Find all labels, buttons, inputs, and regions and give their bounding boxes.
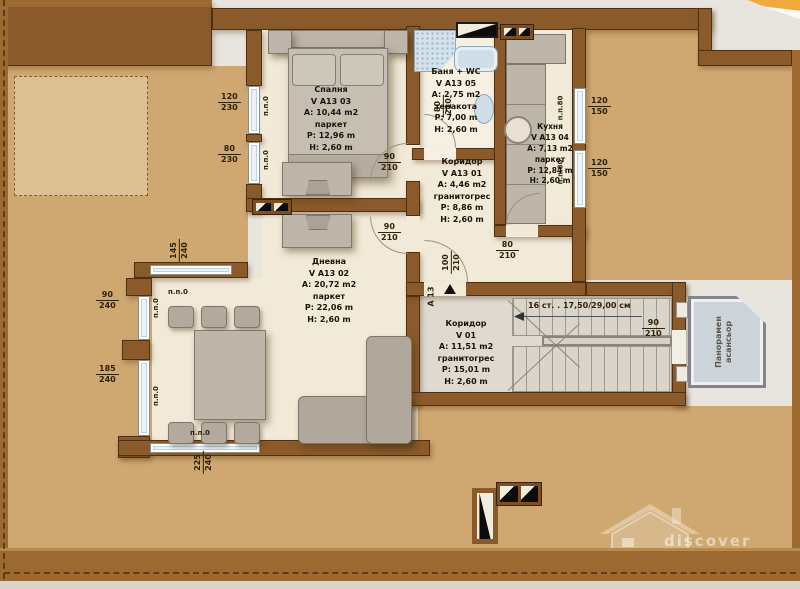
elevator-pier [676,366,688,382]
dim-living-window-top: 145240 [169,239,190,262]
room-area: A: 7,13 m2 [518,144,582,155]
dining-chair [168,306,194,328]
dim-living-window-bottom: 225240 [193,451,214,474]
room-height: H: 2,60 m [518,176,582,187]
flue-cell-icon [504,28,516,36]
parapet-label: п.п.0 [262,96,270,116]
room-height: H: 2,60 m [424,376,508,388]
parapet-wall-horizontal [698,50,792,66]
room-area: A: 4,46 m2 [424,179,500,191]
dim-bedroom-door: 90210 [378,152,401,173]
room-label-kitchen: Кухня V A13 04 A: 7,13 m2 паркет P: 12,8… [518,122,582,187]
wall [406,181,420,216]
room-label-hall: Коридор V A13 01 A: 4,46 m2 гранитогрес … [424,156,500,226]
door-gap-living [406,216,420,252]
room-label-lobby: Коридор V 01 A: 11,51 m2 гранитогрес P: … [424,318,508,388]
dim-living-door: 90210 [378,222,401,243]
parapet-label: п.п.0 [152,298,160,318]
stairs-label: 16 ст. . 17,50/29,00 см [528,301,678,310]
room-perimeter: P: 8,86 m [424,202,500,214]
room-name: Коридор [424,318,508,330]
wall [246,30,262,86]
room-name: Баня + WC [420,66,492,78]
room-floor-type: паркет [286,119,376,131]
dim-bedroom-window-2: 80230 [218,144,241,165]
flue-cell-icon [274,203,289,211]
chair [306,180,330,195]
flue-cell-icon [500,486,518,502]
dim-living-window-2: 185240 [96,364,119,385]
chimney-fill [477,493,493,539]
pillar [122,340,150,360]
room-floor-type: теракота [420,101,492,113]
chimney-symbol [472,488,498,544]
flue-cell-icon [256,203,271,211]
flue-symbol [500,24,534,40]
door-gap-lobby [672,330,686,364]
room-label-living: Дневна V A13 02 A: 20,72 m2 паркет P: 22… [284,256,374,326]
flue-symbol [496,482,542,506]
room-floor-type: гранитогрес [424,191,500,203]
stairs-lower-flight [512,346,672,392]
pillar [126,278,152,296]
elevator-label: Панорамен асансьор [714,302,734,382]
wall [246,134,262,142]
room-id: V A13 05 [420,78,492,90]
room-floor-type: гранитогрес [424,353,508,365]
room-label-bath: Баня + WC V A13 05 A: 2,75 m2 теракота P… [420,66,492,136]
room-floor-type: паркет [518,155,582,166]
vent-shaft [456,22,498,38]
elevator-label-line1: Панорамен [714,316,723,368]
room-floor-type: паркет [284,291,374,303]
parapet-label: п.п.80 [556,96,564,121]
room-name: Спалня [286,84,376,96]
dim-kitchen-door: 80210 [496,240,519,261]
parapet-label: п.п.0 [168,288,188,296]
dim-living-window-1: 90240 [96,290,119,311]
dim-kitchen-window-2: 120150 [588,158,611,179]
room-height: H: 2,60 m [424,214,500,226]
wall-mass-top-left [0,0,212,66]
window-living-1 [138,296,150,340]
room-perimeter: P: 12,96 m [286,130,376,142]
room-area: A: 11,51 m2 [424,341,508,353]
dining-chair [234,422,260,444]
pillow [340,54,384,86]
window-living-top [150,265,232,275]
dining-chair [234,306,260,328]
room-perimeter: P: 7,00 m [420,112,492,124]
window-bedroom-1 [248,86,260,134]
stairs-walk-line [524,316,642,317]
room-perimeter: P: 12,84 m [518,166,582,177]
pillow [292,54,336,86]
entrance-label: A 13 [427,286,436,306]
room-height: H: 2,60 m [284,314,374,326]
floor-plan: Панорамен асансьор [0,0,800,589]
dim-kitchen-window-1: 120150 [588,96,611,117]
room-height: H: 2,60 m [420,124,492,136]
window-bedroom-2 [248,142,260,184]
room-label-bedroom: Спалня V A13 03 A: 10,44 m2 паркет P: 12… [286,84,376,154]
vent-shaft-fill [458,24,496,36]
room-id: V A13 01 [424,168,500,180]
elevator-label-line2: асансьор [724,321,733,363]
terrace-right [585,66,792,280]
frame-stitching [4,572,796,574]
chair [306,215,330,230]
dim-entrance-door: 100210 [441,251,462,274]
dining-chair [201,306,227,328]
wall-lobby-south [406,392,686,406]
flue-cell-icon [519,28,531,36]
dim-bedroom-window-1: 120230 [218,92,241,113]
page-bottom-strip [0,581,800,589]
room-perimeter: P: 22,06 m [284,302,374,314]
room-name: Дневна [284,256,374,268]
parapet-label: п.п.0 [262,150,270,170]
parapet-label: п.п.0 [190,429,210,437]
frame-bottom [0,548,800,584]
frame-top-left [0,0,212,7]
window-living-2 [138,360,150,436]
room-id: V A13 02 [284,268,374,280]
frame-right [792,50,800,589]
room-area: A: 2,75 m2 [420,89,492,101]
dining-table [194,330,266,420]
room-height: H: 2,60 m [286,142,376,154]
room-id: V A13 04 [518,133,582,144]
parapet-label: п.п.0 [152,386,160,406]
room-id: V A13 03 [286,96,376,108]
sofa-back [366,336,412,444]
terrace-top-right [585,30,698,66]
door-gap-kitchen [506,225,538,237]
frame-stitching [3,0,5,589]
room-id: V 01 [424,330,508,342]
wall-lobby-north [586,282,686,296]
room-area: A: 20,72 m2 [284,279,374,291]
flue-cell-icon [521,486,539,502]
terrace-floor-marking [14,76,148,196]
dim-lobby-door: 90210 [642,318,665,339]
room-name: Кухня [518,122,582,133]
room-perimeter: P: 15,01 m [424,364,508,376]
flue-symbol [252,199,292,215]
room-area: A: 10,44 m2 [286,107,376,119]
room-name: Коридор [424,156,500,168]
